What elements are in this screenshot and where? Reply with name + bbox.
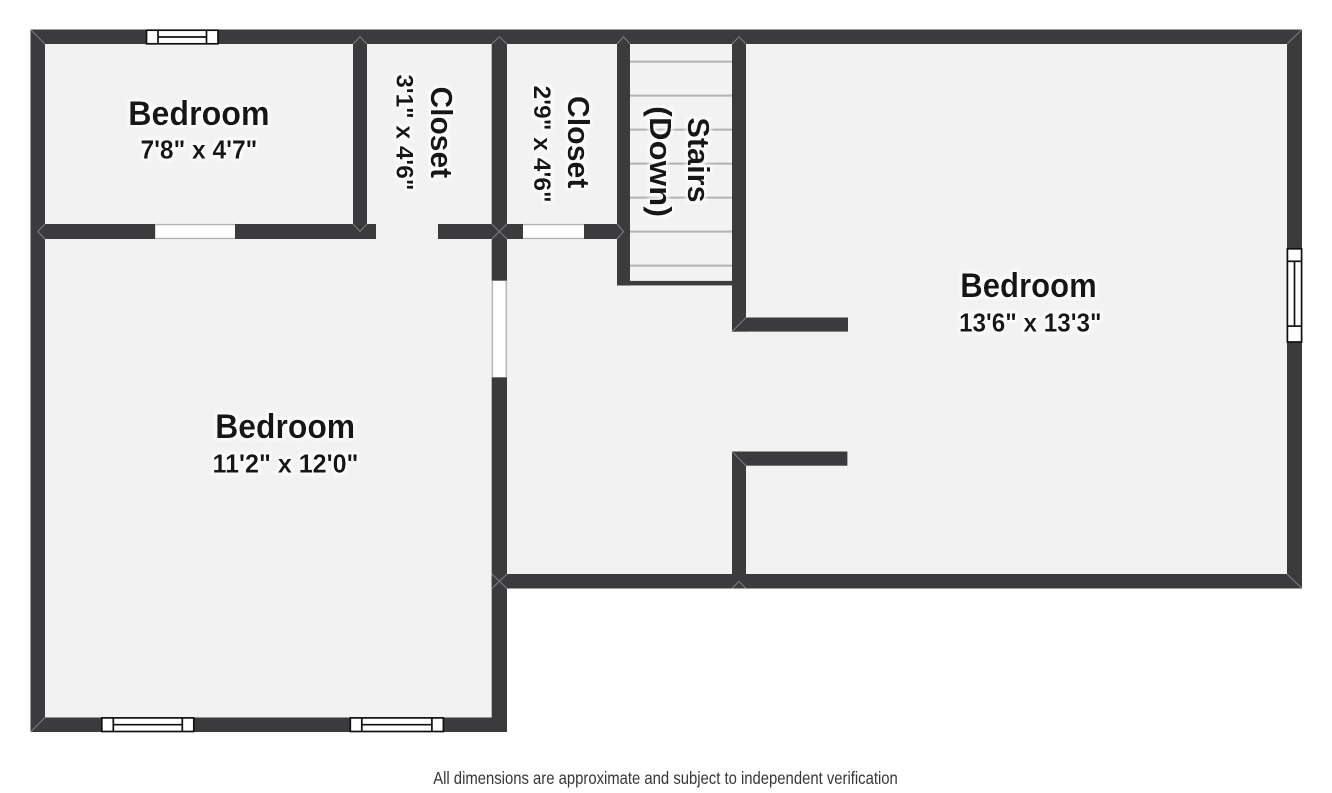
svg-text:Closet: Closet	[424, 86, 459, 178]
svg-text:11'2" x 12'0": 11'2" x 12'0"	[213, 449, 359, 479]
svg-text:3'1" x 4'6": 3'1" x 4'6"	[391, 74, 418, 190]
svg-text:All dimensions are approximate: All dimensions are approximate and subje…	[433, 768, 898, 788]
svg-text:13'6" x 13'3": 13'6" x 13'3"	[959, 307, 1102, 337]
svg-text:Bedroom: Bedroom	[960, 267, 1097, 305]
svg-text:Bedroom: Bedroom	[215, 408, 355, 446]
svg-text:2'9" x 4'6": 2'9" x 4'6"	[528, 85, 555, 202]
svg-text:Bedroom: Bedroom	[128, 95, 269, 133]
svg-text:(Down): (Down)	[643, 106, 678, 217]
svg-text:Stairs: Stairs	[681, 117, 716, 202]
svg-text:7'8" x 4'7": 7'8" x 4'7"	[140, 135, 257, 165]
svg-text:Closet: Closet	[561, 96, 596, 189]
